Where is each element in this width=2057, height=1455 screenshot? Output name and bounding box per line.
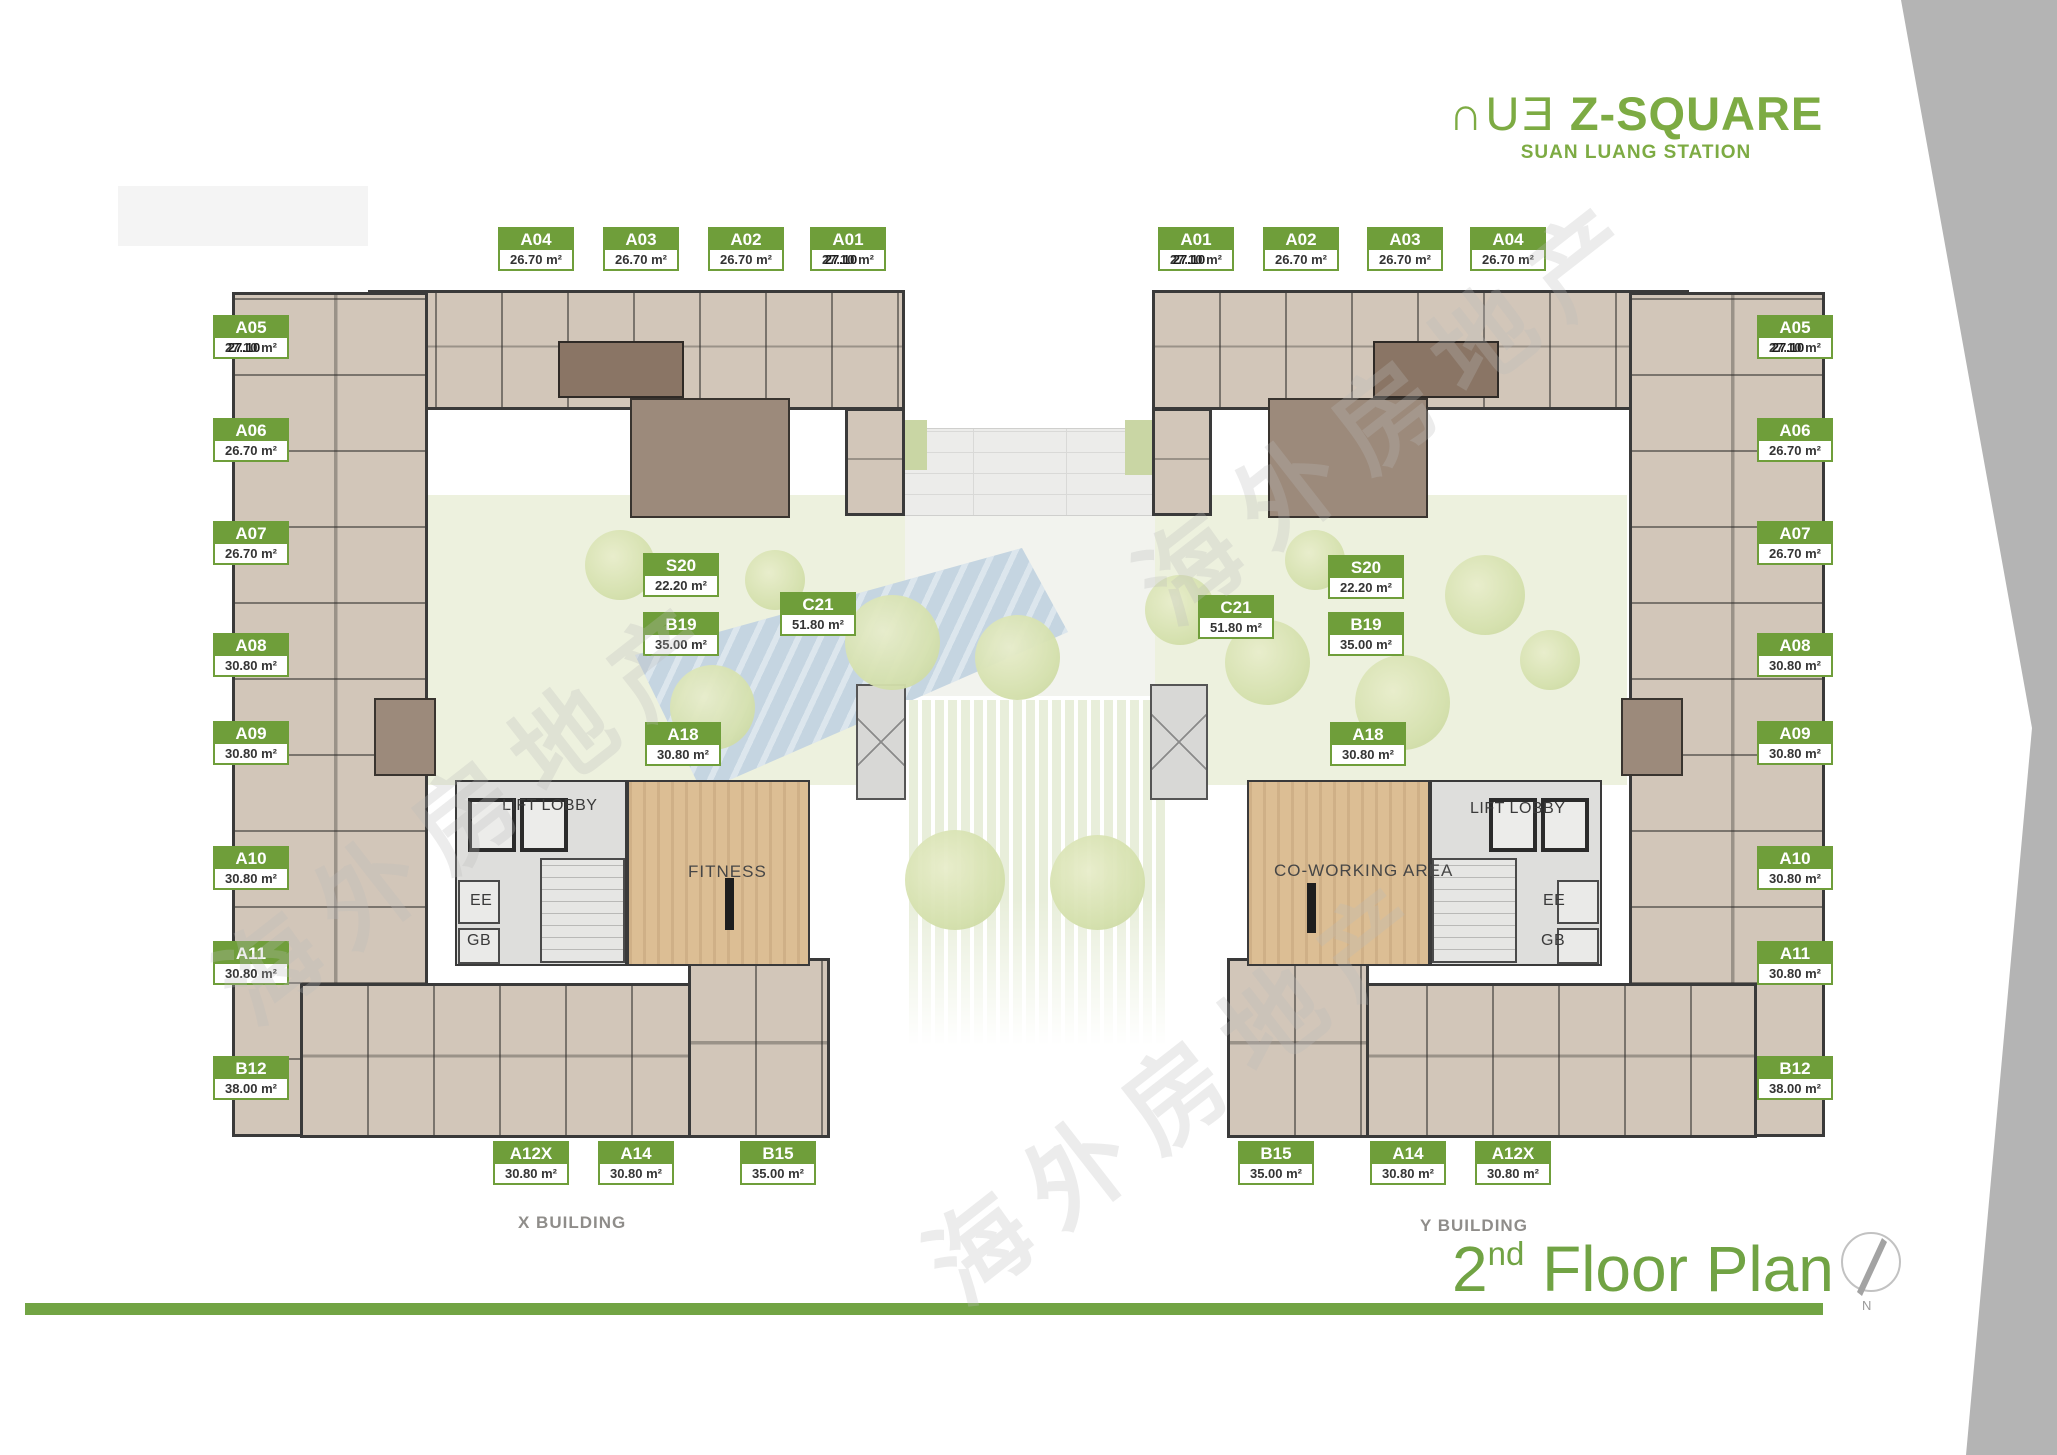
unit-id: A14 — [600, 1143, 672, 1164]
unit-area: 35.00 m² — [645, 635, 717, 654]
compass-icon: N — [1838, 1230, 1908, 1314]
unit-id: A03 — [1369, 229, 1441, 250]
unit-area: 35.00 m² — [742, 1164, 814, 1183]
x-brown-rooms-lower — [630, 398, 790, 518]
unit-area: 30.80 m² — [215, 744, 287, 763]
unit-label-a10-right: A1030.80 m² — [1757, 846, 1833, 890]
unit-label-b15-right: B1535.00 m² — [1238, 1141, 1314, 1185]
x-building-caption: X BUILDING — [518, 1213, 626, 1233]
floor-title-text: Floor Plan — [1542, 1233, 1834, 1305]
unit-area: 30.80 m² — [215, 869, 287, 888]
unit-area: 30.80 m² — [215, 656, 287, 675]
unit-area: 51.80 m² — [782, 615, 854, 634]
unit-area: 27.10 m²27.10 — [812, 250, 884, 269]
tree — [1520, 630, 1580, 690]
unit-area: 26.70 m² — [1759, 441, 1831, 460]
unit-id: A18 — [1332, 724, 1404, 745]
hedge-right — [1125, 420, 1155, 475]
unit-area: 35.00 m² — [1240, 1164, 1312, 1183]
unit-label-b19-left: B1935.00 m² — [643, 612, 719, 656]
faint-roof-rect — [118, 186, 368, 246]
x-stairs — [540, 858, 625, 963]
unit-area: 26.70 m² — [710, 250, 782, 269]
unit-area: 30.80 m² — [495, 1164, 567, 1183]
unit-label-s20-left: S2022.20 m² — [643, 553, 719, 597]
unit-id: A05 — [1759, 317, 1831, 338]
unit-area: 30.80 m² — [1759, 656, 1831, 675]
unit-id: C21 — [782, 594, 854, 615]
unit-id: S20 — [1330, 557, 1402, 578]
unit-label-a11-left: A1130.80 m² — [213, 941, 289, 985]
x-ramp-block — [856, 684, 906, 800]
unit-label-a03-top-left: A0326.70 m² — [603, 227, 679, 271]
x-slab-brown-rooms — [374, 698, 436, 776]
y-b15-extension — [1227, 958, 1369, 1138]
coworking-label: CO-WORKING AREA — [1274, 861, 1453, 881]
unit-id: A11 — [1759, 943, 1831, 964]
unit-area: 27.10 m²27.10 — [1759, 338, 1831, 357]
unit-id: B19 — [1330, 614, 1402, 635]
x-gb-label: GB — [467, 932, 491, 950]
unit-id: A07 — [1759, 523, 1831, 544]
tree — [845, 595, 940, 690]
unit-label-a14-right: A1430.80 m² — [1370, 1141, 1446, 1185]
unit-area: 26.70 m² — [1369, 250, 1441, 269]
unit-id: A10 — [1759, 848, 1831, 869]
unit-id: A12X — [495, 1143, 567, 1164]
unit-label-a07-right: A0726.70 m² — [1757, 521, 1833, 565]
unit-label-c21-right: C2151.80 m² — [1198, 595, 1274, 639]
unit-label-a02-top-left: A0226.70 m² — [708, 227, 784, 271]
unit-label-a04-top-right: A0426.70 m² — [1470, 227, 1546, 271]
unit-label-c21-left: C2151.80 m² — [780, 592, 856, 636]
unit-area: 26.70 m² — [1759, 544, 1831, 563]
unit-id: C21 — [1200, 597, 1272, 618]
x-top-wing-column — [845, 408, 905, 516]
unit-id: A04 — [500, 229, 572, 250]
floor-number: 2 — [1452, 1233, 1488, 1305]
unit-id: A09 — [1759, 723, 1831, 744]
unit-label-a07-left: A0726.70 m² — [213, 521, 289, 565]
unit-id: A01 — [1160, 229, 1232, 250]
unit-id: A09 — [215, 723, 287, 744]
x-b15-extension — [688, 958, 830, 1138]
unit-label-a01-top-left: A0127.10 m²27.10 — [810, 227, 886, 271]
x-brown-rooms-upper — [558, 341, 684, 398]
unit-area: 26.70 m² — [1265, 250, 1337, 269]
unit-area: 30.80 m² — [600, 1164, 672, 1183]
unit-label-a06-right: A0626.70 m² — [1757, 418, 1833, 462]
unit-id: A06 — [1759, 420, 1831, 441]
tree — [1050, 835, 1145, 930]
unit-area: 22.20 m² — [645, 576, 717, 595]
unit-id: A08 — [215, 635, 287, 656]
unit-id: B15 — [742, 1143, 814, 1164]
unit-label-a14-left: A1430.80 m² — [598, 1141, 674, 1185]
unit-area: 51.80 m² — [1200, 618, 1272, 637]
unit-label-a03-top-right: A0326.70 m² — [1367, 227, 1443, 271]
tree — [1445, 555, 1525, 635]
y-lift-lobby-label: LIFT LOBBY — [1470, 800, 1565, 818]
unit-area: 30.80 m² — [1759, 744, 1831, 763]
unit-label-b19-right: B1935.00 m² — [1328, 612, 1404, 656]
unit-label-a01-top-right: A0127.10 m²27.10 — [1158, 227, 1234, 271]
logo-brand-prefix: ∩UƎ — [1449, 87, 1557, 140]
unit-area: 30.80 m² — [647, 745, 719, 764]
unit-area: 26.70 m² — [500, 250, 572, 269]
unit-label-a12x-left: A12X30.80 m² — [493, 1141, 569, 1185]
unit-id: A18 — [647, 724, 719, 745]
unit-id: A10 — [215, 848, 287, 869]
unit-id: A12X — [1477, 1143, 1549, 1164]
unit-label-b12-left: B1238.00 m² — [213, 1056, 289, 1100]
unit-id: B19 — [645, 614, 717, 635]
unit-label-a05-right: A0527.10 m²27.10 — [1757, 315, 1833, 359]
fitness-wall-bar — [725, 878, 734, 930]
unit-area: 35.00 m² — [1330, 635, 1402, 654]
y-slab-brown-rooms — [1621, 698, 1683, 776]
unit-id: S20 — [645, 555, 717, 576]
unit-label-a08-left: A0830.80 m² — [213, 633, 289, 677]
unit-id: B12 — [215, 1058, 287, 1079]
unit-id: A04 — [1472, 229, 1544, 250]
unit-label-a09-right: A0930.80 m² — [1757, 721, 1833, 765]
unit-label-a05-left: A0527.10 m²27.10 — [213, 315, 289, 359]
unit-label-b12-right: B1238.00 m² — [1757, 1056, 1833, 1100]
hedge-left — [902, 420, 927, 470]
floor-plan-title: 2nd Floor Plan — [1452, 1232, 1834, 1306]
floor-ordinal: nd — [1488, 1235, 1525, 1272]
unit-area: 27.10 m²27.10 — [1160, 250, 1232, 269]
tree — [905, 830, 1005, 930]
unit-area: 38.00 m² — [215, 1079, 287, 1098]
unit-id: A03 — [605, 229, 677, 250]
unit-area: 30.80 m² — [215, 964, 287, 983]
y-ee-label: EE — [1543, 892, 1565, 910]
unit-label-b15-left: B1535.00 m² — [740, 1141, 816, 1185]
unit-label-a12x-right: A12X30.80 m² — [1475, 1141, 1551, 1185]
unit-id: A11 — [215, 943, 287, 964]
tree — [975, 615, 1060, 700]
fitness-label: FITNESS — [688, 862, 767, 882]
floor-plan-page: ∩UƎ Z-SQUARE SUAN LUANG STATION — [0, 0, 2057, 1455]
unit-area: 26.70 m² — [605, 250, 677, 269]
unit-id: A07 — [215, 523, 287, 544]
unit-label-a04-top-left: A0426.70 m² — [498, 227, 574, 271]
logo-subtitle: SUAN LUANG STATION — [1436, 142, 1836, 164]
unit-area: 38.00 m² — [1759, 1079, 1831, 1098]
unit-area: 30.80 m² — [1759, 964, 1831, 983]
footer-green-bar — [25, 1303, 1823, 1315]
unit-label-a06-left: A0626.70 m² — [213, 418, 289, 462]
unit-area: 30.80 m² — [1332, 745, 1404, 764]
project-logo: ∩UƎ Z-SQUARE SUAN LUANG STATION — [1436, 88, 1836, 164]
logo-brand-line: ∩UƎ Z-SQUARE — [1436, 88, 1836, 140]
coworking-wall-bar — [1307, 883, 1316, 933]
unit-area: 30.80 m² — [1372, 1164, 1444, 1183]
x-lift-lobby-label: LIFT LOBBY — [502, 797, 597, 815]
unit-area: 26.70 m² — [215, 441, 287, 460]
unit-area: 26.70 m² — [215, 544, 287, 563]
logo-brand-name: Z-SQUARE — [1570, 87, 1823, 140]
unit-area: 22.20 m² — [1330, 578, 1402, 597]
unit-label-a18-right: A1830.80 m² — [1330, 722, 1406, 766]
unit-id: B12 — [1759, 1058, 1831, 1079]
unit-id: A14 — [1372, 1143, 1444, 1164]
unit-label-a09-left: A0930.80 m² — [213, 721, 289, 765]
unit-id: A02 — [1265, 229, 1337, 250]
unit-label-s20-right: S2022.20 m² — [1328, 555, 1404, 599]
unit-label-a11-right: A1130.80 m² — [1757, 941, 1833, 985]
y-gb-label: GB — [1541, 932, 1565, 950]
unit-id: A06 — [215, 420, 287, 441]
y-brown-rooms-upper — [1373, 341, 1499, 398]
y-top-wing-column — [1152, 408, 1212, 516]
unit-id: A05 — [215, 317, 287, 338]
x-ee-label: EE — [470, 892, 492, 910]
y-ramp-block — [1150, 684, 1208, 800]
unit-id: B15 — [1240, 1143, 1312, 1164]
unit-area: 30.80 m² — [1477, 1164, 1549, 1183]
unit-label-a18-left: A1830.80 m² — [645, 722, 721, 766]
unit-id: A08 — [1759, 635, 1831, 656]
y-brown-rooms-lower — [1268, 398, 1428, 518]
unit-label-a08-right: A0830.80 m² — [1757, 633, 1833, 677]
compass-north-label: N — [1862, 1298, 1871, 1313]
unit-area: 27.10 m²27.10 — [215, 338, 287, 357]
unit-label-a10-left: A1030.80 m² — [213, 846, 289, 890]
unit-label-a02-top-right: A0226.70 m² — [1263, 227, 1339, 271]
unit-area: 30.80 m² — [1759, 869, 1831, 888]
unit-id: A01 — [812, 229, 884, 250]
unit-id: A02 — [710, 229, 782, 250]
unit-area: 26.70 m² — [1472, 250, 1544, 269]
